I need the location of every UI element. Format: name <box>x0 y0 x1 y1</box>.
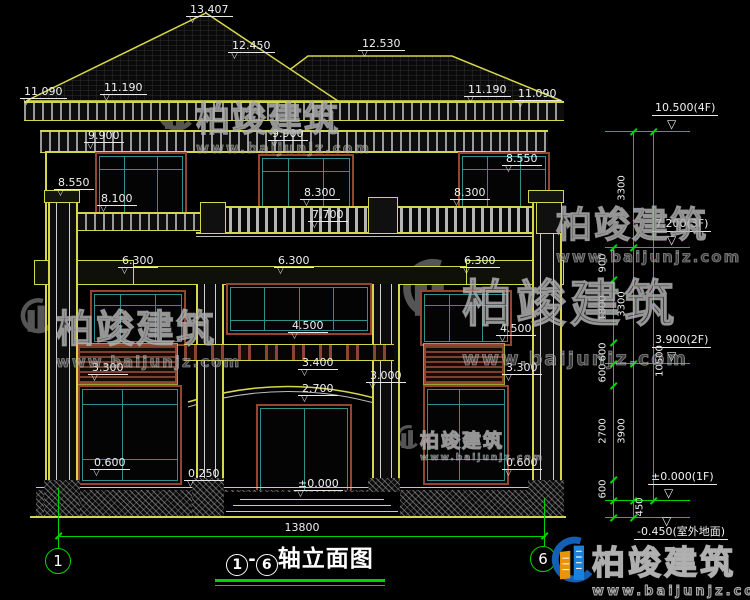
level-flag: 12.530▽ <box>358 38 405 58</box>
right-level-flag: 3.900(2F) <box>652 334 711 346</box>
chain-dim-label: 600 <box>598 363 609 382</box>
level-triangle-icon: ▽ <box>87 143 124 150</box>
right-level-flag: -0.450(室外地面) <box>634 526 728 538</box>
level-triangle-icon: ▽ <box>467 97 511 104</box>
chain-dim-label: 900 <box>598 253 609 272</box>
axis-bubble-1: 1 <box>45 548 71 574</box>
level-flag: 9.900▽ <box>84 130 124 150</box>
level-flag: 8.550▽ <box>502 153 542 173</box>
level-flag: 11.190▽ <box>100 82 147 102</box>
level-flag: 4.500▽ <box>288 320 328 340</box>
level-flag: 3.300▽ <box>88 362 128 382</box>
chain-dim-label: 1800 <box>598 295 609 320</box>
level-triangle-icon: ▽ <box>23 99 67 106</box>
level-triangle-icon: ▽ <box>369 383 406 390</box>
level-triangle-icon: ▽ <box>297 491 343 498</box>
right-level-flag: 10.500(4F) <box>652 102 718 114</box>
chain-dim-label: 2700 <box>598 418 609 443</box>
level-triangle-icon: ▽ <box>291 333 328 340</box>
level-triangle-icon: ▽ <box>100 206 137 213</box>
dim-chain-mid <box>633 131 634 517</box>
chain-dim-label: 3300 <box>617 175 628 200</box>
balcony-pedestal-center <box>368 197 398 234</box>
level-triangle-icon: ▽ <box>189 17 233 24</box>
level-triangle-icon: ▽ <box>662 515 671 527</box>
level-flag: 11.190▽ <box>464 84 511 104</box>
decorative-frieze <box>184 344 394 361</box>
level-triangle-icon: ▽ <box>667 234 676 246</box>
window-2f-left <box>90 290 186 346</box>
axis-number-1: 1 <box>53 552 63 570</box>
title-axis-end-bubble: 6 <box>256 554 278 576</box>
pillar-base-left <box>44 480 80 516</box>
level-triangle-icon: ▽ <box>271 141 308 148</box>
level-triangle-icon: ▽ <box>505 375 542 382</box>
eave-cornice-band <box>24 101 564 121</box>
level-flag: 3.300▽ <box>502 362 542 382</box>
ground-line <box>30 516 566 518</box>
level-triangle-icon: ▽ <box>361 51 405 58</box>
level-flag: 0.250▽ <box>184 468 224 488</box>
level-flag: ±0.000▽ <box>294 478 343 498</box>
level-flag: 8.300▽ <box>450 187 490 207</box>
chain-dim-label: 600 <box>598 342 609 361</box>
pillar-cap-right <box>528 190 564 203</box>
level-triangle-icon: ▽ <box>187 481 224 488</box>
level-flag: 8.100▽ <box>97 193 137 213</box>
title-underline-thick <box>215 579 385 582</box>
level-triangle-icon: ▽ <box>57 190 94 197</box>
level-line <box>605 363 690 364</box>
left-wing-cornice <box>58 212 200 231</box>
level-triangle-icon: ▽ <box>664 487 673 499</box>
axis1-leader <box>58 488 59 548</box>
right-level-flag: ±0.000(1F) <box>648 471 717 483</box>
pillar-base-right <box>528 480 564 516</box>
level-flag: 6.300▽ <box>118 255 158 275</box>
level-triangle-icon: ▽ <box>505 470 542 477</box>
level-triangle-icon: ▽ <box>301 370 338 377</box>
level-line <box>605 517 690 518</box>
shutter-1f-right <box>424 344 504 384</box>
level-flag: 6.300▽ <box>274 255 314 275</box>
level-flag: 0.600▽ <box>90 457 130 477</box>
level-line <box>605 500 690 501</box>
roof-left-mass <box>26 13 338 101</box>
title-underline-thin <box>215 585 385 586</box>
level-triangle-icon: ▽ <box>499 336 536 343</box>
level-triangle-icon: ▽ <box>453 200 490 207</box>
level-flag: 9.900▽ <box>268 128 308 148</box>
balcony-pedestal-left <box>200 202 226 234</box>
level-triangle-icon: ▽ <box>667 118 676 130</box>
balcony-pedestal-right <box>536 202 562 234</box>
level-triangle-icon: ▽ <box>303 200 340 207</box>
title-dash: - <box>248 549 255 570</box>
overall-dim-line <box>59 536 546 537</box>
pillar-left <box>48 201 78 491</box>
level-triangle-icon: ▽ <box>463 268 500 275</box>
level-line <box>605 247 690 248</box>
overall-width-dim: 13800 <box>270 521 334 534</box>
brand-logo-icon <box>544 535 592 595</box>
chain-dim-label: 10500 <box>655 345 666 377</box>
level-flag: 3.400▽ <box>298 357 338 377</box>
title-axis-start-bubble: 1 <box>226 554 248 576</box>
chain-dim-label: 450 <box>635 497 646 516</box>
level-triangle-icon: ▽ <box>277 268 314 275</box>
level-triangle-icon: ▽ <box>93 470 130 477</box>
level-triangle-icon: ▽ <box>91 375 128 382</box>
level-flag: 0.600▽ <box>502 457 542 477</box>
level-triangle-icon: ▽ <box>311 222 348 229</box>
level-triangle-icon: ▽ <box>505 166 542 173</box>
chain-dim-label: 3900 <box>617 418 628 443</box>
level-triangle-icon: ▽ <box>301 396 338 403</box>
window-1f-right <box>423 385 509 485</box>
pilaster-mid-left <box>196 284 224 490</box>
dim-chain-outer <box>653 131 654 500</box>
level-triangle-icon: ▽ <box>103 95 147 102</box>
pillar-right <box>532 201 562 491</box>
level-triangle-icon: ▽ <box>231 53 275 60</box>
wall-left-edge <box>45 152 47 500</box>
level-flag: 11.090▽ <box>514 88 561 108</box>
cad-elevation-canvas: 13800 1 6 1-6轴立面图 13.407▽12.450▽12.530▽1… <box>0 0 750 600</box>
level-flag: 8.300▽ <box>300 187 340 207</box>
chain-dim-label: 600 <box>598 479 609 498</box>
level-flag: 6.300▽ <box>460 255 500 275</box>
level-flag: 7.700▽ <box>308 209 348 229</box>
level-flag: 3.000▽ <box>366 370 406 390</box>
level-line <box>605 131 690 132</box>
level-flag: 2.700▽ <box>298 383 338 403</box>
balcony-floor-trim <box>196 236 562 237</box>
drawing-title: 1-6轴立面图 <box>150 539 450 586</box>
level-flag: 12.450▽ <box>228 40 275 60</box>
right-level-flag: 7.200(3F) <box>652 218 711 230</box>
level-flag: 13.407▽ <box>186 4 233 24</box>
level-triangle-icon: ▽ <box>667 350 676 362</box>
level-triangle-icon: ▽ <box>517 101 561 108</box>
level-flag: 8.550▽ <box>54 177 94 197</box>
title-text: 轴立面图 <box>278 546 374 572</box>
chain-dim-label: 3300 <box>617 291 628 316</box>
level-flag: 11.090▽ <box>20 86 67 106</box>
level-triangle-icon: ▽ <box>121 268 158 275</box>
level-flag: 4.500▽ <box>496 323 536 343</box>
